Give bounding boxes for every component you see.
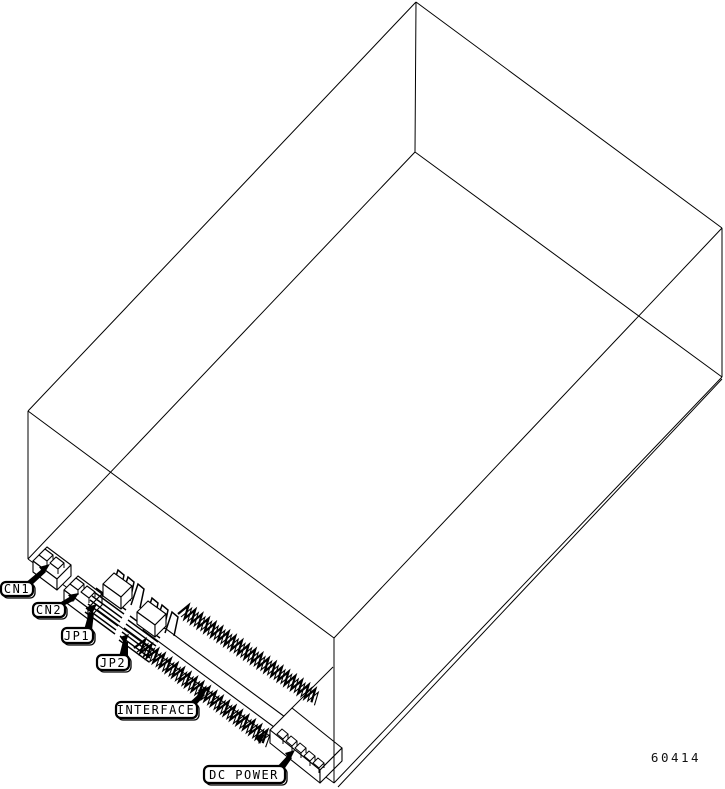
callout-dc-power: DC POWER [204, 750, 295, 785]
callout-interface: INTERFACE [116, 687, 208, 720]
callout-label-dc-power: DC POWER [209, 768, 279, 782]
leader-arrow-icon [119, 634, 129, 657]
drawing-number: 60414 [651, 750, 701, 765]
drive-enclosure-wireframe [28, 2, 722, 787]
connector-location-diagram: CN1 CN2 JP1 JP2 INTERFACE DC POWER 60414 [0, 0, 725, 789]
diagram-page: CN1 CN2 JP1 JP2 INTERFACE DC POWER 60414 [0, 0, 725, 789]
callout-jp2: JP2 [97, 634, 131, 672]
callout-label-jp1: JP1 [64, 629, 90, 643]
callout-cn1: CN1 [1, 564, 50, 598]
callout-label-cn2: CN2 [36, 603, 62, 617]
callout-label-cn1: CN1 [4, 582, 30, 596]
callout-label-jp2: JP2 [100, 656, 126, 670]
callout-label-interface: INTERFACE [117, 703, 196, 717]
cn1-connector [33, 547, 71, 590]
